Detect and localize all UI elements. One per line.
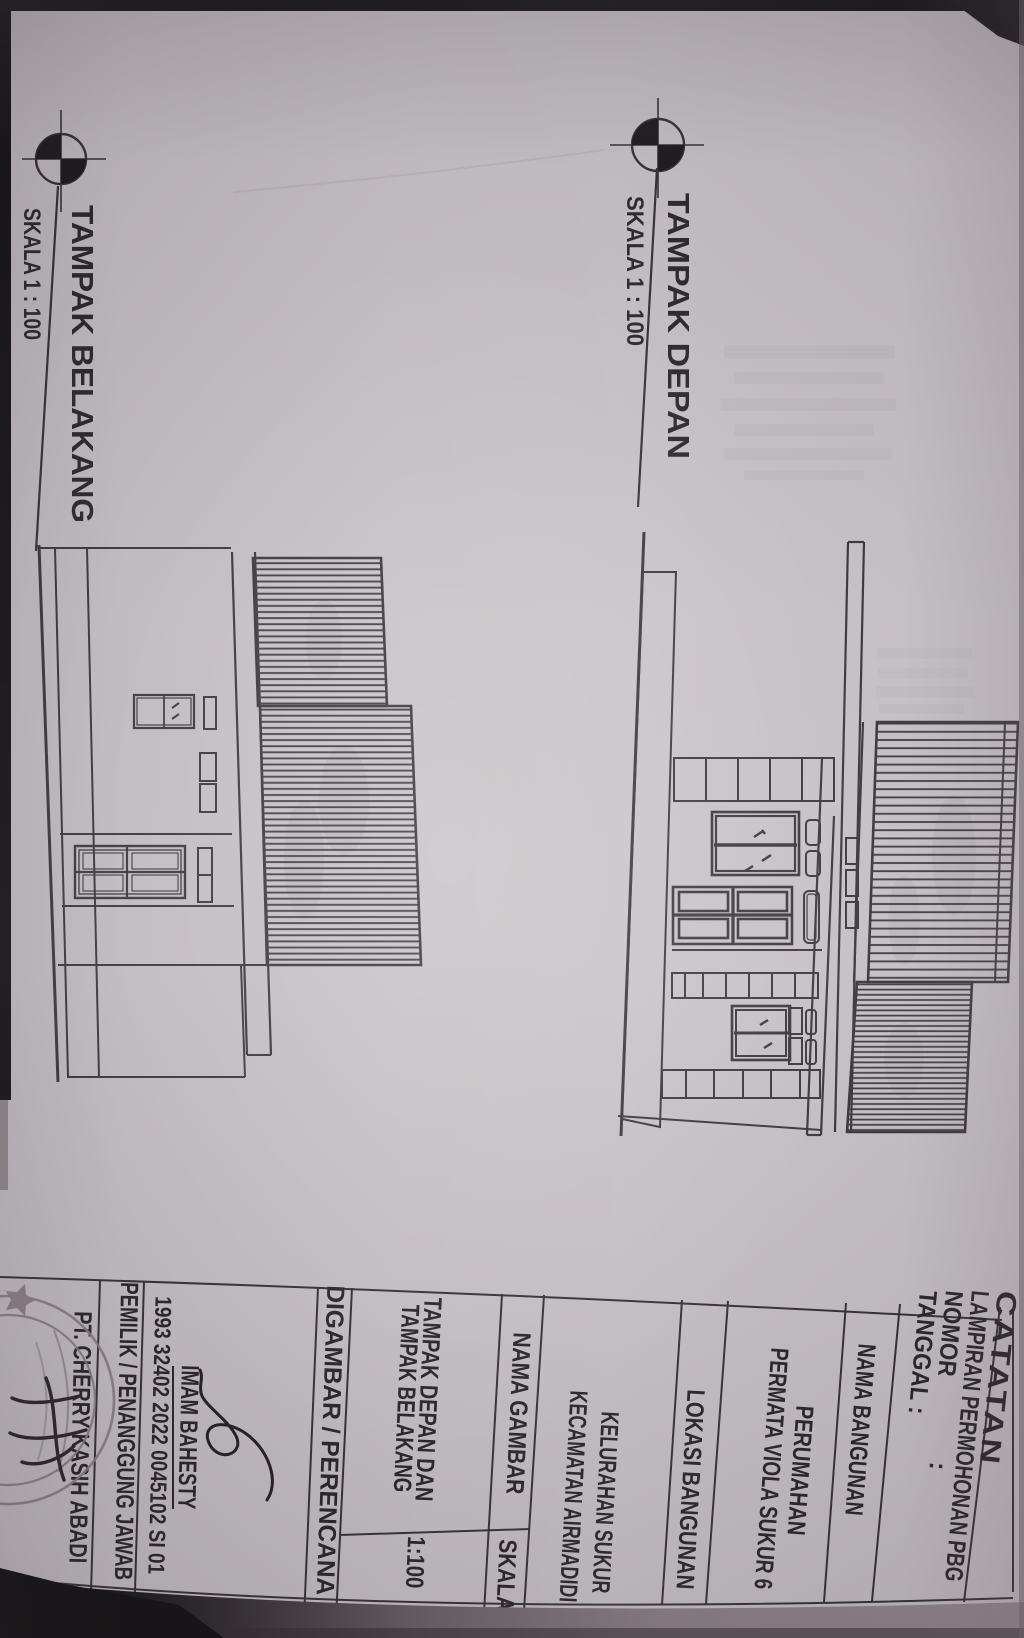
svg-text::: : [923, 1461, 952, 1472]
svg-text:LOKASI BANGUNAN: LOKASI BANGUNAN [670, 1389, 709, 1590]
svg-text:TANGGAL :: TANGGAL : [903, 1289, 942, 1415]
svg-text:1993 32402 2022 0045102 SI 01: 1993 32402 2022 0045102 SI 01 [143, 1296, 176, 1575]
svg-text:IMAM BAHESTY: IMAM BAHESTY [172, 1365, 204, 1510]
svg-text:NAMA GAMBAR: NAMA GAMBAR [500, 1332, 535, 1495]
svg-text:SKALA 1 : 100: SKALA 1 : 100 [18, 208, 45, 340]
svg-text:SKALA 1 : 100: SKALA 1 : 100 [621, 196, 648, 346]
svg-text:TAMPAK DEPAN: TAMPAK DEPAN [661, 193, 696, 459]
svg-text:KELURAHAN SUKUR: KELURAHAN SUKUR [586, 1411, 623, 1594]
svg-text:PEMILIK / PENANGGUNG JAWAB: PEMILIK / PENANGGUNG JAWAB [109, 1282, 143, 1581]
svg-text:1:100: 1:100 [400, 1536, 430, 1589]
svg-text:NAMA BANGUNAN: NAMA BANGUNAN [839, 1343, 880, 1517]
svg-text:TAMPAK BELAKANG: TAMPAK BELAKANG [65, 205, 100, 523]
svg-text:KECAMATAN AIRMADIDI: KECAMATAN AIRMADIDI [553, 1390, 592, 1603]
svg-text:SKALA: SKALA [490, 1539, 521, 1612]
svg-text:PT. CHERRY KASIH ABADI: PT. CHERRY KASIH ABADI [63, 1311, 96, 1564]
